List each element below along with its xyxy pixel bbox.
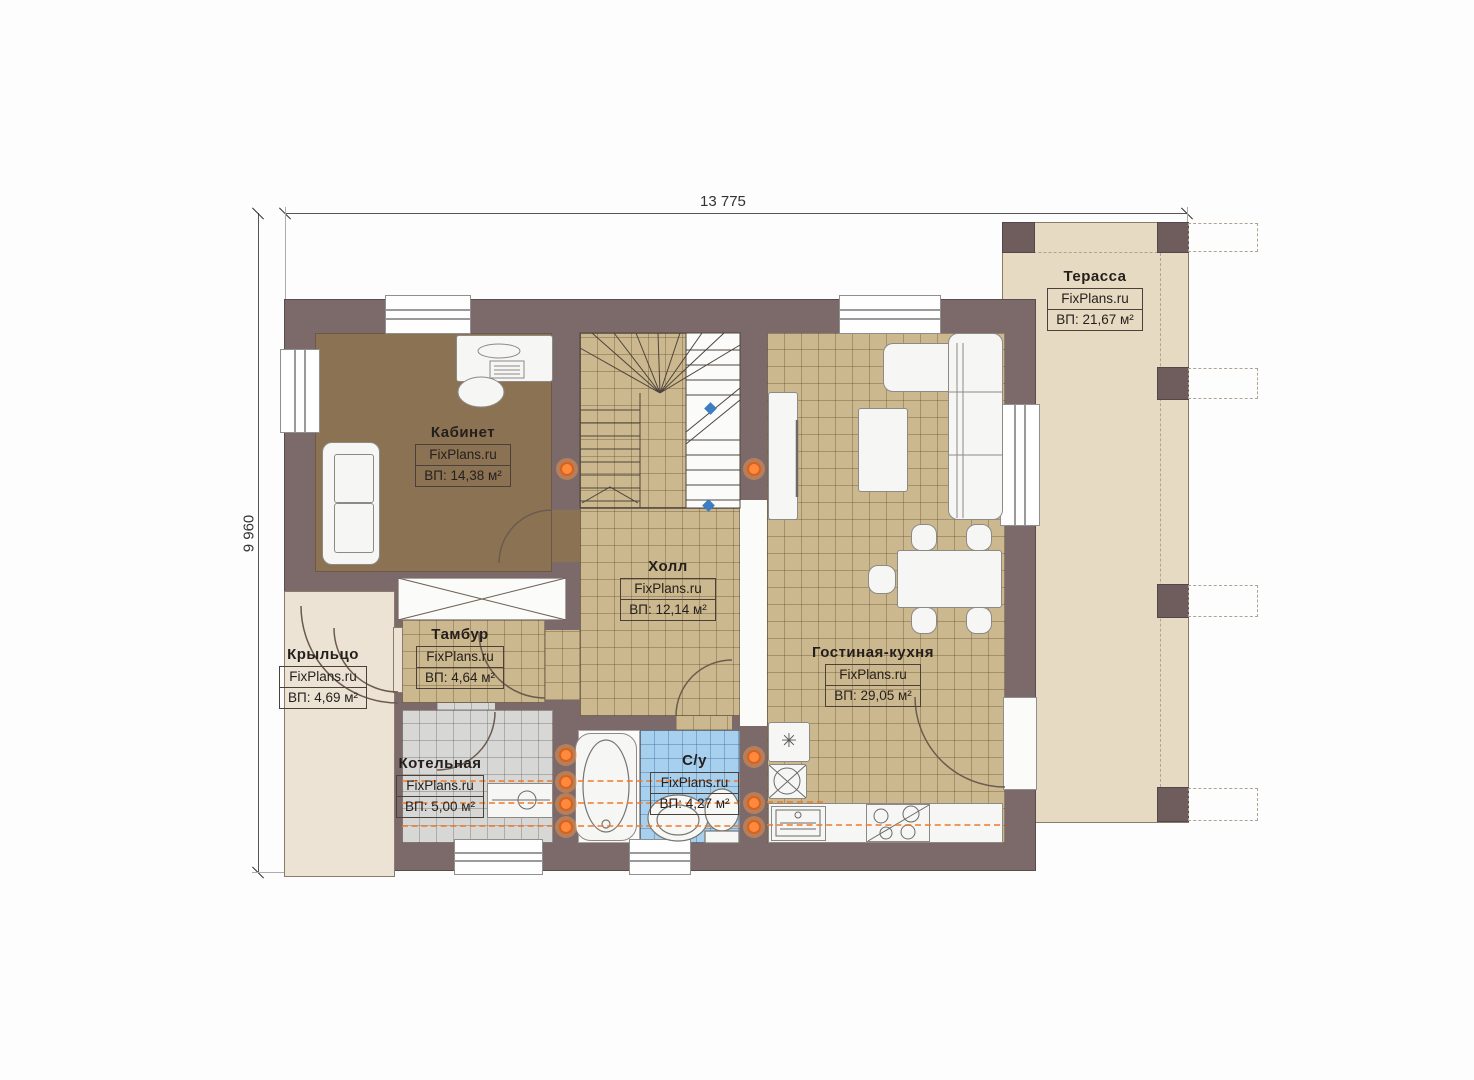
- room-info-box: FixPlans.ru ВП: 14,38 м²: [415, 444, 511, 487]
- brand-label: FixPlans.ru: [416, 445, 510, 466]
- outlet-icon: [747, 462, 761, 476]
- terrace-pillar: [1158, 585, 1188, 617]
- porch-floor: [285, 592, 394, 876]
- room-info-box: FixPlans.ru ВП: 4,64 м²: [416, 646, 504, 689]
- bath-door-opening: [676, 716, 732, 730]
- room-label-office: Кабинет FixPlans.ru ВП: 14,38 м²: [398, 424, 528, 487]
- sofa-seat: [334, 454, 374, 503]
- office-door-opening: [552, 510, 580, 562]
- room-name: Котельная: [375, 755, 505, 772]
- chair: [966, 524, 992, 551]
- room-label-terrace: Терасса FixPlans.ru ВП: 21,67 м²: [1030, 268, 1160, 331]
- room-area: ВП: 12,14 м²: [621, 600, 715, 620]
- oven: [768, 764, 807, 799]
- room-name: Холл: [603, 558, 733, 575]
- terrace-pillar: [1158, 788, 1188, 821]
- brand-label: FixPlans.ru: [651, 773, 737, 794]
- vestibule-hall-opening: [545, 630, 580, 700]
- room-info-box: FixPlans.ru ВП: 12,14 м²: [620, 578, 716, 621]
- terrace-pillar: [1158, 223, 1188, 252]
- room-area: ВП: 4,69 м²: [280, 688, 366, 708]
- room-area: ВП: 4,64 м²: [417, 668, 503, 688]
- beam-dashed-outline: [1188, 788, 1258, 821]
- outlet-icon: [559, 748, 573, 762]
- brand-label: FixPlans.ru: [280, 667, 366, 688]
- room-name: С/у: [632, 752, 757, 769]
- window: [840, 296, 940, 333]
- room-area: ВП: 14,38 м²: [416, 466, 510, 486]
- room-name: Гостиная-кухня: [808, 644, 938, 661]
- corner-sofa: [948, 333, 1003, 520]
- room-label-boiler: Котельная FixPlans.ru ВП: 5,00 м²: [375, 755, 505, 818]
- chair: [966, 607, 992, 634]
- tv-stand: [768, 392, 798, 520]
- window: [1001, 405, 1039, 525]
- window: [386, 296, 470, 333]
- beam-dashed-outline: [1188, 585, 1258, 617]
- room-info-box: FixPlans.ru ВП: 4,27 м²: [650, 772, 738, 815]
- terrace-door-opening: [1003, 697, 1037, 790]
- extension-line: [285, 207, 286, 300]
- room-info-box: FixPlans.ru ВП: 4,69 м²: [279, 666, 367, 709]
- outlet-icon: [560, 462, 574, 476]
- terrace-pillar: [1003, 223, 1034, 252]
- beam-dashed-outline: [1188, 223, 1258, 252]
- wiring-dashed: [767, 824, 1000, 826]
- brand-label: FixPlans.ru: [1048, 289, 1142, 310]
- room-label-living: Гостиная-кухня FixPlans.ru ВП: 29,05 м²: [808, 644, 938, 707]
- room-area: ВП: 21,67 м²: [1048, 310, 1142, 330]
- chair: [911, 524, 937, 551]
- cooktop: [866, 804, 930, 842]
- wiring-dashed: [402, 825, 553, 827]
- desk: [456, 335, 553, 382]
- room-info-box: FixPlans.ru ВП: 5,00 м²: [396, 775, 484, 818]
- window: [455, 840, 542, 874]
- hall-living-opening: [740, 500, 767, 726]
- room-area: ВП: 4,27 м²: [651, 794, 737, 814]
- dining-table: [897, 550, 1002, 608]
- dimension-height-label: 9 960: [240, 515, 257, 553]
- outlet-icon: [559, 797, 573, 811]
- outlet-icon: [747, 820, 761, 834]
- chair: [911, 607, 937, 634]
- outlet-icon: [559, 820, 573, 834]
- floor-plan: 13 775 9 960: [0, 0, 1474, 1080]
- brand-label: FixPlans.ru: [417, 647, 503, 668]
- outlet-icon: [559, 775, 573, 789]
- room-label-porch: Крыльцо FixPlans.ru ВП: 4,69 м²: [258, 646, 388, 709]
- window: [281, 350, 319, 432]
- room-label-vestibule: Тамбур FixPlans.ru ВП: 4,64 м²: [395, 626, 525, 689]
- brand-label: FixPlans.ru: [621, 579, 715, 600]
- closet: [398, 578, 566, 620]
- terrace-pillar: [1158, 368, 1188, 399]
- room-name: Кабинет: [398, 424, 528, 441]
- brand-label: FixPlans.ru: [826, 665, 920, 686]
- room-info-box: FixPlans.ru ВП: 21,67 м²: [1047, 288, 1143, 331]
- fridge: ✳: [768, 722, 810, 762]
- terrace-post-dashed: [1160, 223, 1161, 822]
- room-name: Крыльцо: [258, 646, 388, 663]
- room-label-hall: Холл FixPlans.ru ВП: 12,14 м²: [603, 558, 733, 621]
- sofa-seat: [334, 503, 374, 553]
- room-label-bathroom: С/у FixPlans.ru ВП: 4,27 м²: [632, 752, 757, 815]
- beam-dashed-outline: [1188, 368, 1258, 399]
- dimension-line-left: [258, 213, 259, 873]
- room-name: Тамбур: [395, 626, 525, 643]
- chair: [868, 565, 896, 594]
- fridge-snowflake-icon: ✳: [781, 731, 797, 752]
- room-area: ВП: 29,05 м²: [826, 686, 920, 706]
- room-name: Терасса: [1030, 268, 1160, 285]
- brand-label: FixPlans.ru: [397, 776, 483, 797]
- coffee-table: [858, 408, 908, 492]
- wiring-dashed: [578, 825, 740, 827]
- stairs-upper-flight: [686, 333, 740, 508]
- room-area: ВП: 5,00 м²: [397, 797, 483, 817]
- wiring-dashed: [767, 801, 823, 803]
- window: [630, 840, 690, 874]
- room-info-box: FixPlans.ru ВП: 29,05 м²: [825, 664, 921, 707]
- boiler-door-opening: [437, 703, 495, 710]
- dimension-width-label: 13 775: [700, 193, 746, 210]
- dimension-line-top: [285, 213, 1187, 214]
